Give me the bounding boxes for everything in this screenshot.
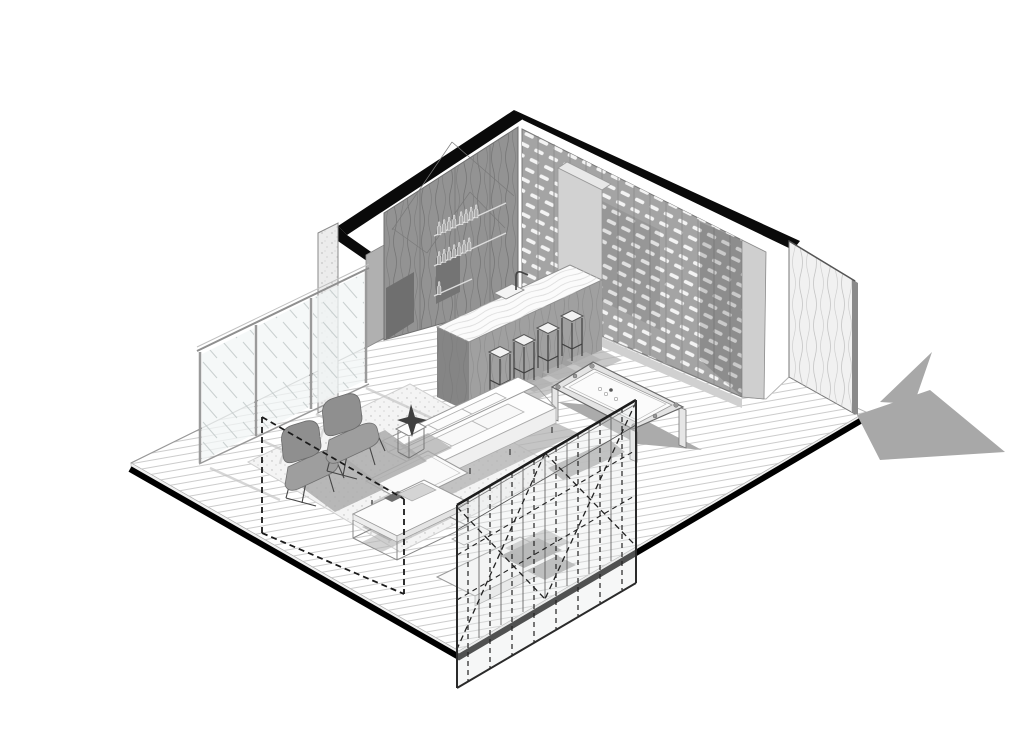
wall-edge-strip [366,245,384,348]
drawing-canvas: Axonometric cutaway drawing of a lounge … [0,0,1024,736]
panel-edge-post [852,279,858,415]
panel-ground-shadow [857,390,1005,460]
rack-end-face [742,240,766,399]
axonometric-interior-drawing: Axonometric cutaway drawing of a lounge … [0,0,1024,736]
